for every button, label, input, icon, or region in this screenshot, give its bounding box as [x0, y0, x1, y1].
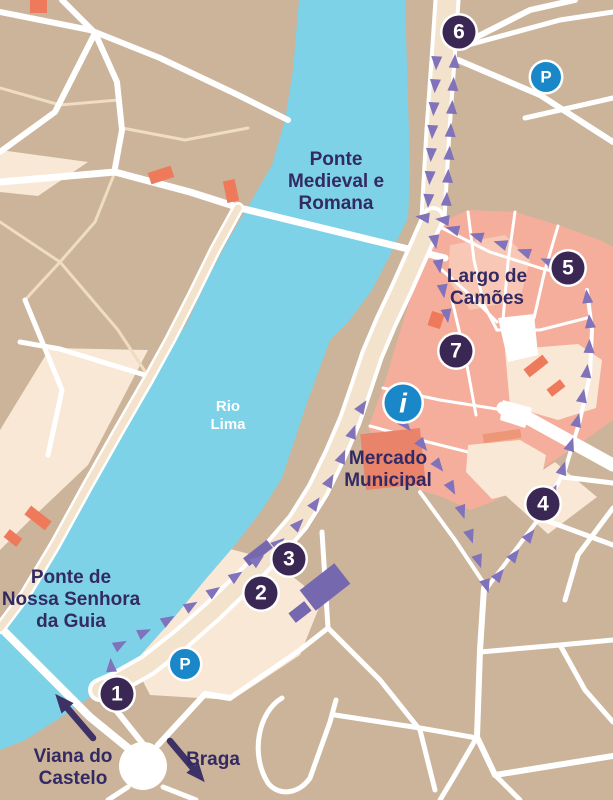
stop-marker-1[interactable]: 1	[98, 675, 136, 713]
stop-marker-7[interactable]: 7	[437, 332, 475, 370]
stop-marker-6[interactable]: 6	[440, 13, 478, 51]
stop-marker-number: 5	[562, 257, 574, 280]
roundabout	[119, 742, 167, 790]
red-building	[30, 0, 47, 13]
stop-marker-number: 1	[111, 683, 123, 706]
stop-marker-number: 6	[453, 21, 465, 44]
parking-icon[interactable]: P	[168, 647, 203, 682]
parking-letter: P	[179, 655, 190, 674]
stop-marker-number: 2	[255, 582, 267, 605]
stop-marker-number: 3	[283, 548, 295, 571]
map-label-largo-de-camoes: Largo deCamões	[447, 266, 527, 309]
parking-letter: P	[540, 68, 551, 87]
stop-marker-5[interactable]: 5	[549, 249, 587, 287]
stop-marker-2[interactable]: 2	[242, 574, 280, 612]
info-icon[interactable]: i	[382, 382, 424, 424]
info-letter: i	[399, 388, 408, 419]
stop-marker-number: 7	[450, 340, 462, 363]
parking-icon[interactable]: P	[529, 60, 564, 95]
map-canvas: 1234567PPi PonteMedieval eRomanaLargo de…	[0, 0, 613, 800]
stop-marker-number: 4	[537, 493, 549, 516]
stop-marker-4[interactable]: 4	[524, 485, 562, 523]
exit-label-viana-do-castelo: Viana doCastelo	[34, 746, 113, 789]
exit-label-braga: Braga	[186, 749, 240, 770]
tour-map: 1234567PPi PonteMedieval eRomanaLargo de…	[0, 0, 613, 800]
map-label-mercado-municipal: MercadoMunicipal	[344, 448, 432, 491]
stop-marker-3[interactable]: 3	[270, 540, 308, 578]
